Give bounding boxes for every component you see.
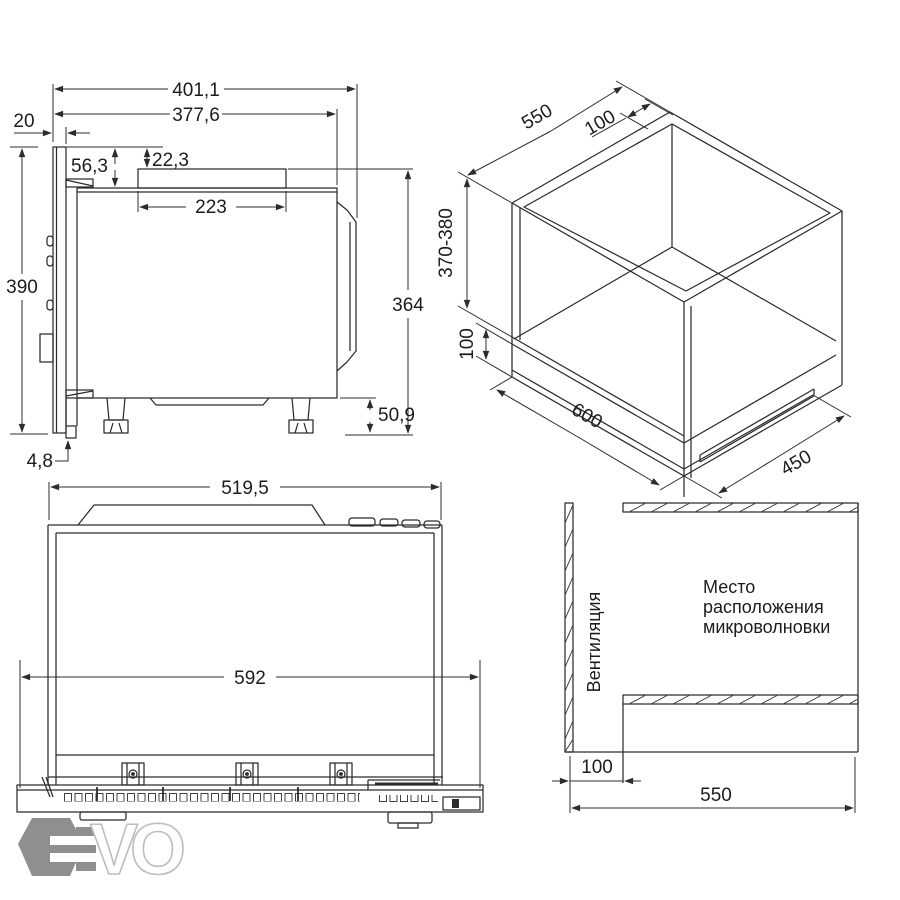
top-view-labels: 519,5 592 [221, 478, 269, 689]
cabinet-top-inner [524, 124, 830, 291]
section-view: Вентиляция Место расположения микроволно… [552, 503, 858, 813]
niche-outline [512, 112, 842, 497]
ventilation-label: Вентиляция [584, 592, 604, 693]
door-handle [40, 334, 53, 362]
frame-foot [388, 812, 432, 823]
section-outline [565, 503, 858, 783]
evo-watermark: VO [18, 810, 183, 890]
bottom-shelf [623, 695, 858, 704]
control-button [402, 520, 420, 527]
dim-section-depth: 550 [700, 785, 732, 806]
top-cover-plateau [78, 505, 325, 525]
cabinet-top-outer [512, 112, 842, 302]
rear-bump [337, 202, 356, 371]
hinge-bump [47, 256, 53, 266]
niche-isometric-view: 550 100 370-380 100 600 450 [436, 81, 851, 498]
dim-niche-depth: 550 [518, 100, 556, 134]
drawing-svg: 401,1 377,6 20 56,3 22,3 223 390 364 50,… [0, 0, 900, 900]
dim-duct-width: 223 [195, 197, 227, 218]
dim-top-clearance: 56,3 [71, 156, 108, 177]
side-view-labels: 401,1 377,6 20 56,3 22,3 223 390 364 50,… [6, 80, 424, 472]
vent-slots-right [378, 795, 438, 802]
oven-body [77, 188, 337, 398]
niche-dimensions [458, 81, 851, 498]
dim-frame-width: 592 [234, 668, 266, 689]
top-view-dimensions [20, 482, 480, 788]
location-label-line2: расположения [703, 597, 824, 617]
dim-total-depth: 401,1 [172, 80, 220, 101]
dim-body-depth: 377,6 [172, 105, 220, 126]
top-shelf [623, 503, 858, 512]
dim-bottom-gap: 100 [457, 328, 478, 360]
top-duct [138, 169, 286, 188]
front-foot [107, 398, 125, 420]
location-label-line3: микроволновки [703, 617, 830, 637]
side-view-outline [40, 147, 356, 438]
mounting-tab [330, 763, 352, 785]
base-trim [66, 426, 76, 438]
dim-shelf-depth: 450 [777, 446, 815, 480]
rear-foot [292, 398, 310, 420]
dim-body-width: 519,5 [221, 478, 269, 499]
evo-hexagon-logo-icon [18, 818, 84, 876]
dim-rear-gap: 100 [581, 106, 619, 140]
mounting-tab [236, 763, 258, 785]
section-labels: Вентиляция Место расположения микроволно… [581, 577, 830, 806]
hinge-bump [47, 236, 53, 246]
dim-vent-width: 100 [581, 757, 613, 778]
niche-labels: 550 100 370-380 100 600 450 [436, 100, 815, 480]
bottom-tray [150, 398, 269, 405]
top-view-outline [17, 505, 483, 828]
dim-body-height: 364 [392, 295, 424, 316]
dim-feet-height: 50,9 [378, 405, 415, 426]
dim-base-thickness: 4,8 [27, 451, 53, 472]
dim-front-protrusion: 20 [13, 111, 34, 132]
dim-duct-offset: 22,3 [152, 150, 189, 171]
location-label-line1: Место [703, 577, 755, 597]
top-view: 519,5 592 [17, 478, 483, 828]
mounting-tab [122, 763, 144, 785]
microwave-installation-drawing: 401,1 377,6 20 56,3 22,3 223 390 364 50,… [0, 0, 900, 900]
vent-slots [64, 793, 360, 802]
hinge-bump [47, 300, 53, 310]
side-view: 401,1 377,6 20 56,3 22,3 223 390 364 50,… [6, 80, 424, 472]
dim-total-height: 390 [6, 277, 38, 298]
watermark-letters: VO [90, 810, 183, 890]
frame-end-box [443, 797, 480, 810]
door-panel [53, 147, 66, 433]
dim-niche-height: 370-380 [436, 208, 457, 278]
